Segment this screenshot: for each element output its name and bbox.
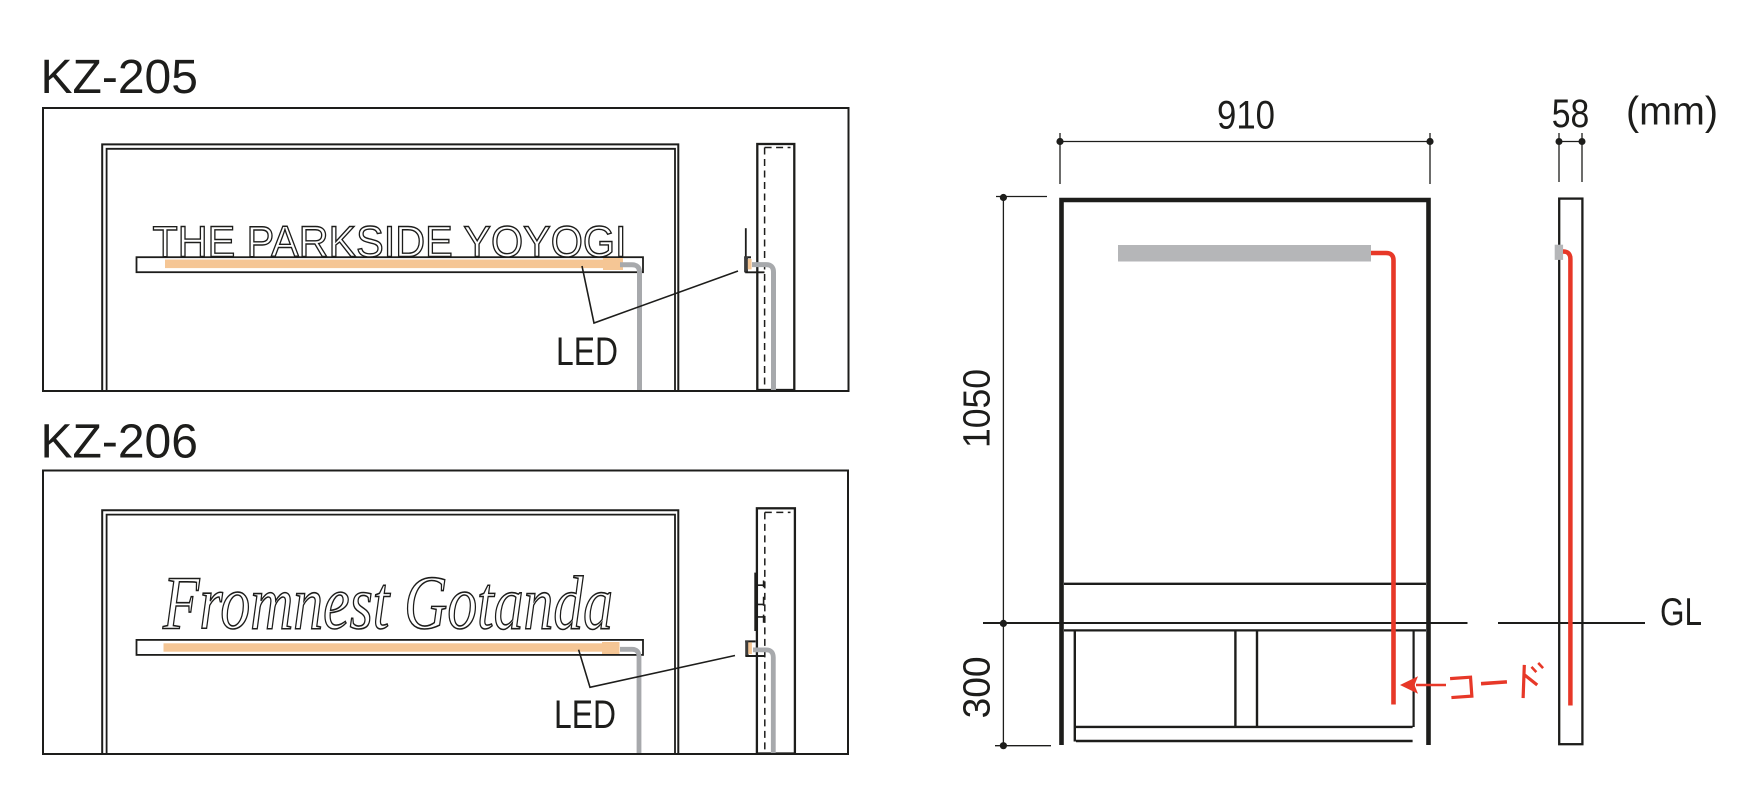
svg-text:58: 58 bbox=[1552, 92, 1590, 136]
svg-text:(mm): (mm) bbox=[1626, 90, 1718, 134]
svg-text:1050: 1050 bbox=[957, 369, 999, 448]
svg-text:LED: LED bbox=[556, 330, 618, 374]
svg-text:300: 300 bbox=[957, 656, 999, 718]
svg-text:KZ-205: KZ-205 bbox=[41, 51, 198, 104]
svg-text:KZ-206: KZ-206 bbox=[41, 416, 198, 469]
svg-text:Fromnest Gotanda: Fromnest Gotanda bbox=[162, 562, 613, 646]
svg-text:THE PARKSIDE YOYOGI: THE PARKSIDE YOYOGI bbox=[153, 217, 627, 266]
svg-text:LED: LED bbox=[554, 693, 616, 737]
svg-text:910: 910 bbox=[1217, 94, 1275, 138]
svg-text:GL: GL bbox=[1660, 591, 1702, 634]
